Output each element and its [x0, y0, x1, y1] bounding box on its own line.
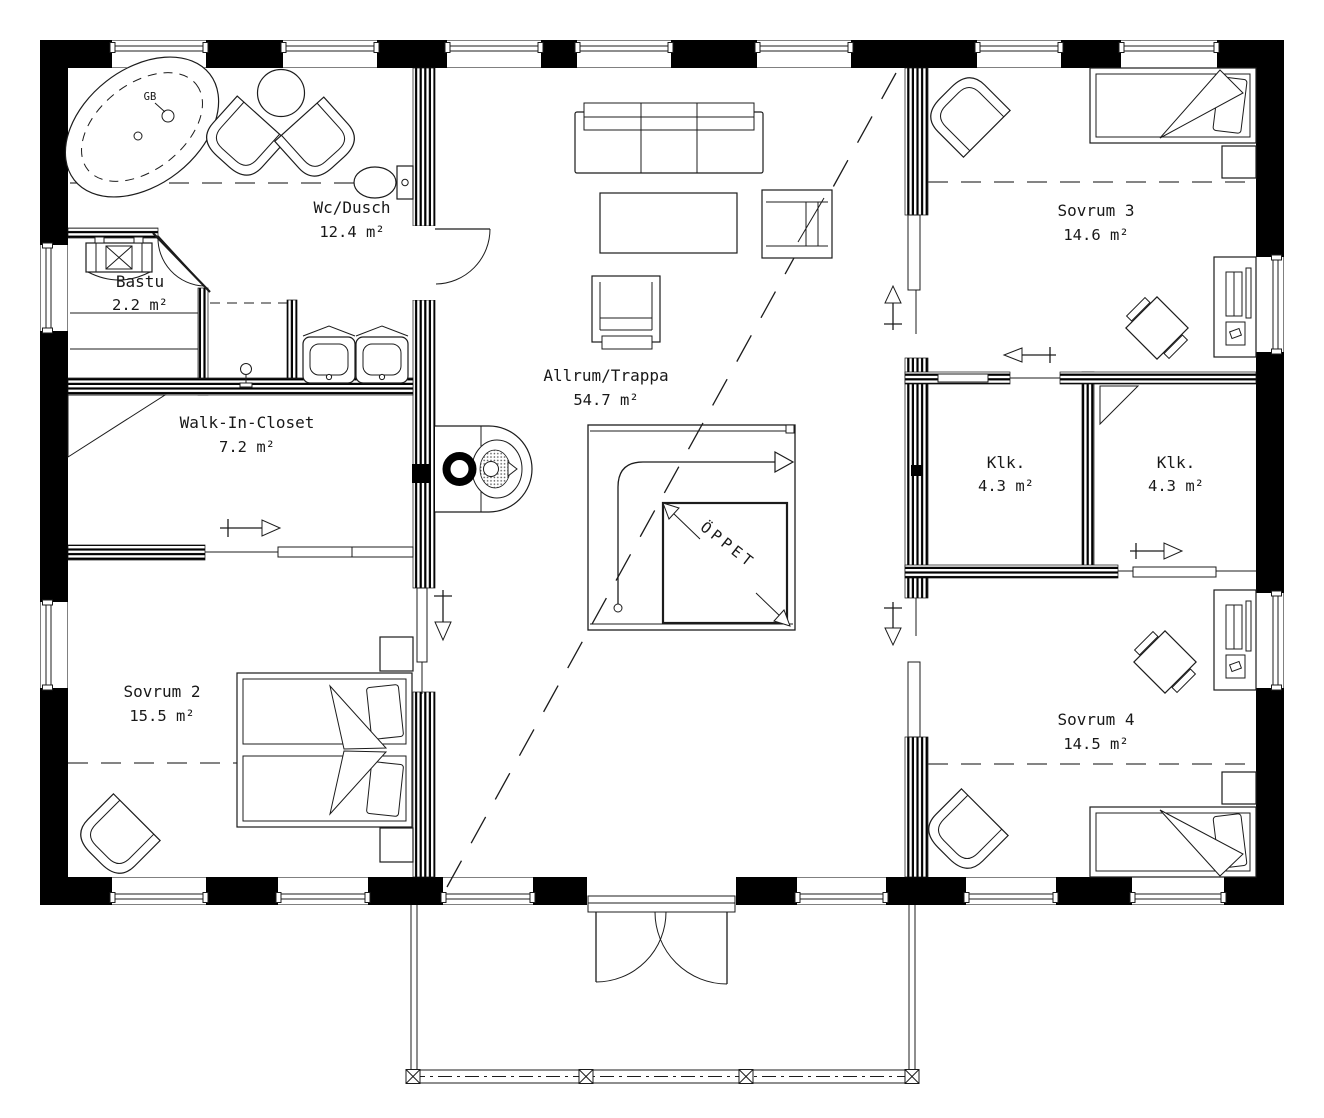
room-label-wic: Walk-In-Closet: [180, 413, 315, 432]
slide-arrow-right-icon: [220, 519, 280, 537]
window: [281, 41, 379, 68]
window: [110, 878, 208, 905]
slide-arrow-down-icon: [884, 602, 902, 645]
room-label-sovrum3: Sovrum 3: [1057, 201, 1134, 220]
room-label-allrum: Allrum/Trappa: [543, 366, 668, 385]
keyboard-icon: [1246, 601, 1251, 651]
double-sink: [303, 326, 408, 383]
room-area-wc: 12.4 m²: [319, 223, 384, 241]
round-table: [258, 70, 305, 117]
room-label-klk-left: Klk.: [987, 453, 1026, 472]
pillow: [366, 684, 403, 739]
table-and-chairs: [198, 70, 362, 185]
room-area-klk-left: 4.3 m²: [978, 477, 1034, 495]
floor-plan-drawing: Wc/Dusch 12.4 m² Bastu 2.2 m² Walk-In-Cl…: [0, 0, 1324, 1118]
sliding-door-leaf: [1133, 567, 1216, 577]
single-bed: [1090, 68, 1256, 143]
window: [276, 878, 370, 905]
flue-block: [412, 464, 430, 483]
nightstand: [1222, 146, 1256, 178]
sofa: [575, 103, 763, 173]
floor-plan: Wc/Dusch 12.4 m² Bastu 2.2 m² Walk-In-Cl…: [0, 0, 1324, 1118]
sliding-door-leaf: [278, 547, 352, 557]
armchair: [920, 789, 1008, 877]
window: [41, 243, 68, 333]
porch-post: [406, 1070, 420, 1084]
nightstand: [380, 828, 413, 862]
desk-chair: [1120, 291, 1194, 365]
room-label-sovrum2: Sovrum 2: [123, 682, 200, 701]
window: [795, 878, 888, 905]
sliding-door-leaf: [938, 374, 988, 382]
window: [575, 41, 673, 68]
room-area-sovrum4: 14.5 m²: [1063, 735, 1128, 753]
window: [1119, 41, 1219, 68]
desk: [1214, 590, 1256, 690]
room-area-allrum: 54.7 m²: [573, 391, 638, 409]
room-label-sovrum4: Sovrum 4: [1057, 710, 1134, 729]
sauna-door: [158, 236, 204, 286]
entry-opening: [587, 876, 736, 912]
armchair: [922, 69, 1010, 157]
toilet: [354, 166, 413, 199]
keyboard-icon: [1246, 268, 1251, 318]
desk: [1214, 257, 1256, 357]
room-label-klk-right: Klk.: [1157, 453, 1196, 472]
window: [445, 41, 543, 68]
armchair: [72, 794, 160, 882]
window: [41, 600, 68, 690]
tub-drain: [162, 110, 174, 122]
nightstand: [1222, 772, 1256, 804]
nightstand: [380, 637, 413, 671]
slide-arrow-right-icon: [1130, 543, 1182, 559]
window: [1130, 878, 1226, 905]
room-area-sovrum2: 15.5 m²: [129, 707, 194, 725]
room-label-wc: Wc/Dusch: [313, 198, 390, 217]
staircase: [588, 425, 795, 630]
room-labels: Wc/Dusch 12.4 m² Bastu 2.2 m² Walk-In-Cl…: [112, 91, 1204, 753]
pillow: [366, 761, 403, 816]
room-area-wic: 7.2 m²: [219, 438, 275, 456]
sauna-interior: [70, 237, 198, 349]
single-bed: [1090, 807, 1256, 877]
window: [755, 41, 853, 68]
fireplace: [435, 426, 532, 512]
porch-post: [739, 1070, 753, 1084]
slide-arrow-down-icon: [434, 590, 452, 640]
open-to-below-label: ÖPPET: [697, 517, 760, 572]
armchair-south: [592, 276, 660, 349]
room-area-sovrum3: 14.6 m²: [1063, 226, 1128, 244]
room-area-klk-right: 4.3 m²: [1148, 477, 1204, 495]
double-bed: [237, 673, 412, 827]
window: [1257, 591, 1284, 690]
shower: [210, 303, 287, 387]
pocket-door-leaf: [908, 215, 920, 290]
pocket-door-leaf: [908, 662, 920, 737]
entry-double-door: [596, 912, 727, 984]
armchair-east: [762, 190, 832, 258]
coffee-table: [600, 193, 737, 253]
porch: [406, 905, 919, 1084]
room-area-bastu: 2.2 m²: [112, 296, 168, 314]
floor-drain-label: GB: [144, 91, 157, 103]
porch-post: [579, 1070, 593, 1084]
entry-threshold: [588, 896, 735, 912]
floor-drain-icon: [241, 364, 252, 375]
wc-door: [412, 226, 490, 300]
slide-arrow-up-icon: [884, 286, 902, 330]
slide-arrow-left-icon: [1004, 347, 1056, 363]
window: [964, 878, 1058, 905]
pocket-door-leaf: [417, 588, 427, 662]
desk-chair: [1128, 625, 1202, 699]
window: [975, 41, 1063, 68]
window: [441, 878, 535, 905]
porch-post: [905, 1070, 919, 1084]
window: [1257, 255, 1284, 354]
room-label-bastu: Bastu: [116, 272, 164, 291]
